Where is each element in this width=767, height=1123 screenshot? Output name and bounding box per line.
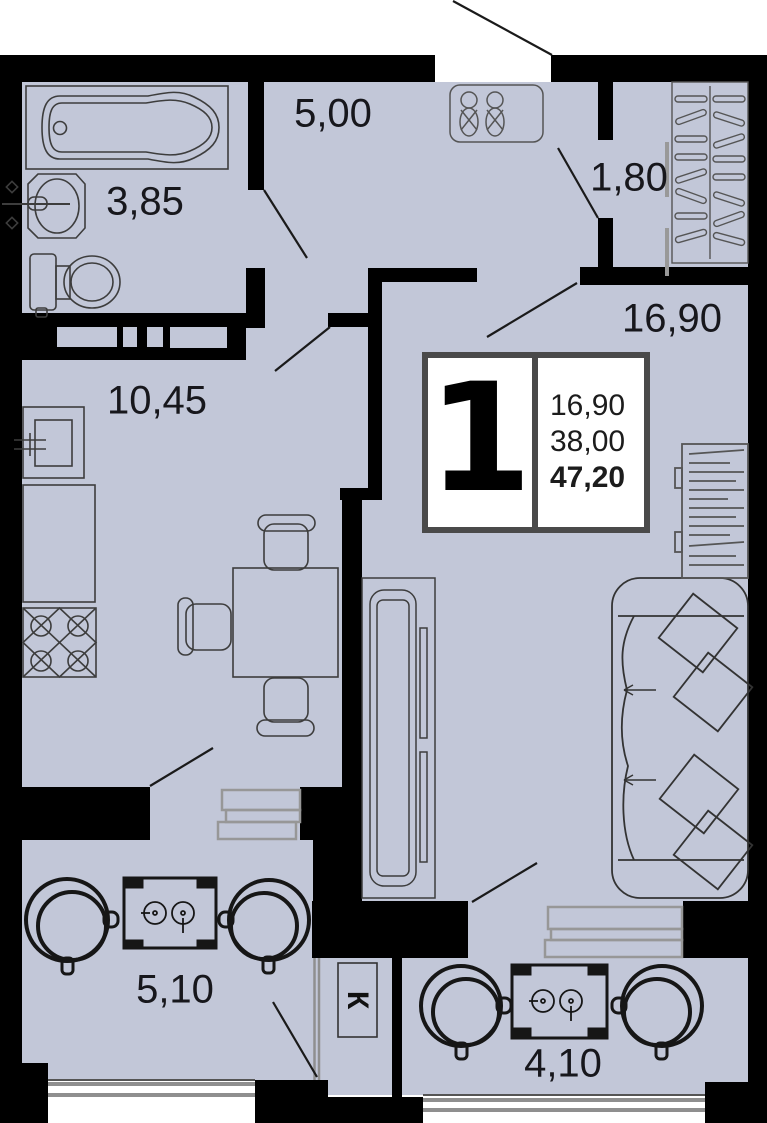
apartment-area-value: 38,00 <box>550 425 644 460</box>
wall <box>598 55 613 140</box>
wall <box>0 1063 48 1123</box>
wall <box>340 488 382 500</box>
wall <box>300 787 362 840</box>
room-label-wardrobe-nook: 1,80 <box>590 156 668 201</box>
wall <box>0 55 22 1063</box>
wall <box>368 268 477 282</box>
total-area-value: 47,20 <box>550 461 644 496</box>
unit-areas-cell: 16,90 38,00 47,20 <box>538 358 644 527</box>
room-label-hallway: 5,00 <box>294 92 372 137</box>
floor-plan: 5,00 1,80 3,85 16,90 10,45 5,10 4,10 К 1… <box>0 0 767 1123</box>
rooms-count: 1 <box>428 364 532 514</box>
wall <box>368 268 382 490</box>
wall <box>580 267 748 285</box>
unit-rooms-count-cell: 1 <box>428 358 538 527</box>
wall <box>0 787 150 840</box>
room-label-kitchen: 10,45 <box>107 379 207 424</box>
room-label-balcony-left: 5,10 <box>136 968 214 1013</box>
wall <box>392 958 402 1097</box>
unit-info-card: 1 16,90 38,00 47,20 <box>422 352 650 533</box>
wall <box>312 901 468 958</box>
shaft-opening <box>170 327 227 348</box>
shaft-opening <box>123 327 137 347</box>
room-label-living-room: 16,90 <box>622 297 722 342</box>
wall <box>748 55 767 1082</box>
room-label-bathroom: 3,85 <box>106 180 184 225</box>
outside-below-right-balcony <box>402 1095 705 1123</box>
wall <box>315 1097 423 1123</box>
wall <box>551 55 767 82</box>
wall <box>255 1080 328 1123</box>
wall <box>0 55 435 82</box>
wall <box>683 901 748 958</box>
duct-label: К <box>340 991 374 1009</box>
wall <box>705 1082 767 1123</box>
living-area-value: 16,90 <box>550 389 644 424</box>
wall <box>248 82 264 190</box>
wall <box>313 840 362 905</box>
shaft-opening <box>57 327 117 347</box>
shaft-opening <box>147 327 163 347</box>
room-label-balcony-right: 4,10 <box>524 1042 602 1087</box>
wall <box>598 218 613 268</box>
wall <box>246 268 265 328</box>
wall <box>328 313 368 327</box>
